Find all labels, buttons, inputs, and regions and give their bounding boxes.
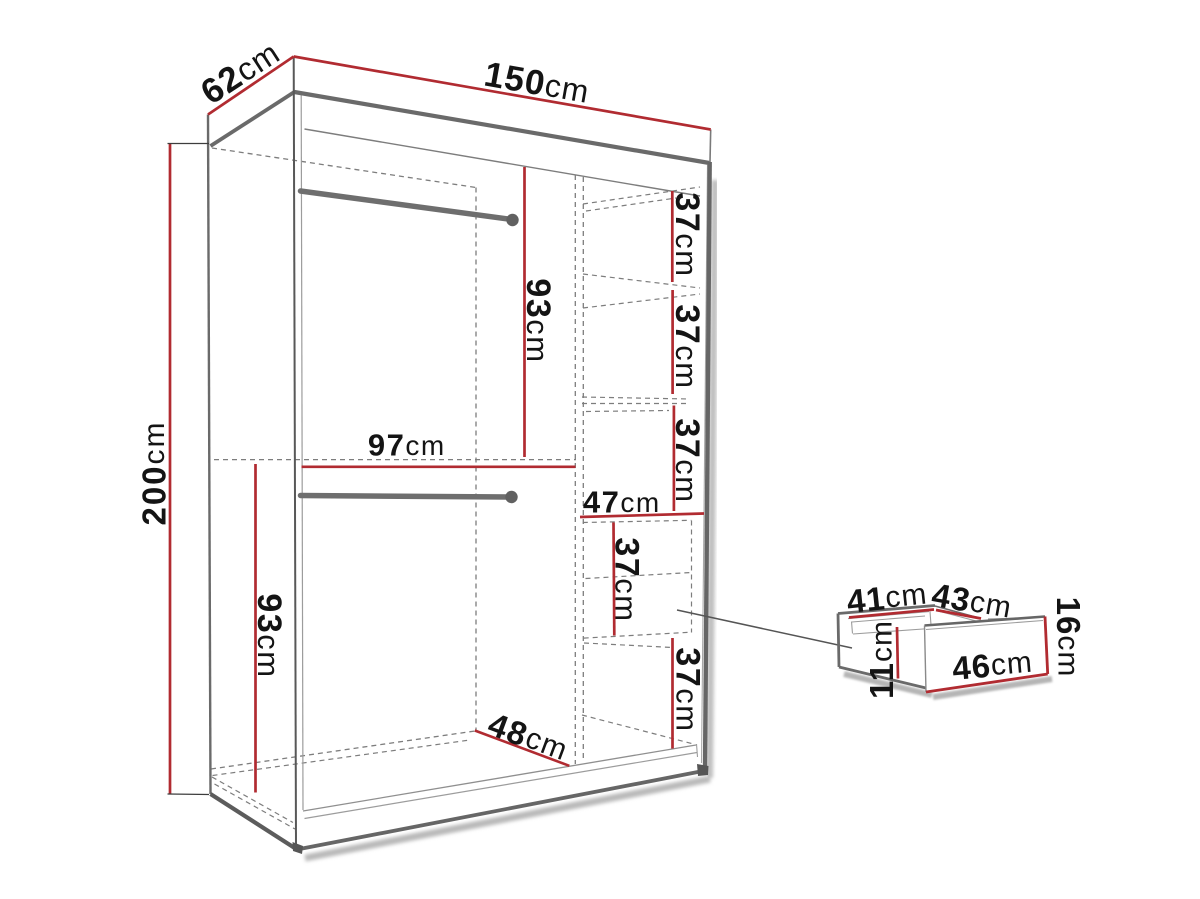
svg-text:37cm: 37cm [669, 647, 707, 732]
svg-text:37cm: 37cm [668, 418, 706, 503]
svg-text:37cm: 37cm [608, 537, 646, 622]
svg-text:37cm: 37cm [668, 192, 706, 277]
svg-text:37cm: 37cm [668, 304, 706, 389]
svg-text:200cm: 200cm [136, 420, 173, 525]
svg-text:47cm: 47cm [583, 485, 661, 520]
svg-text:11cm: 11cm [863, 620, 900, 699]
svg-text:93cm: 93cm [519, 278, 557, 363]
svg-text:93cm: 93cm [250, 593, 288, 678]
svg-text:97cm: 97cm [368, 428, 446, 463]
svg-text:16cm: 16cm [1050, 597, 1087, 678]
